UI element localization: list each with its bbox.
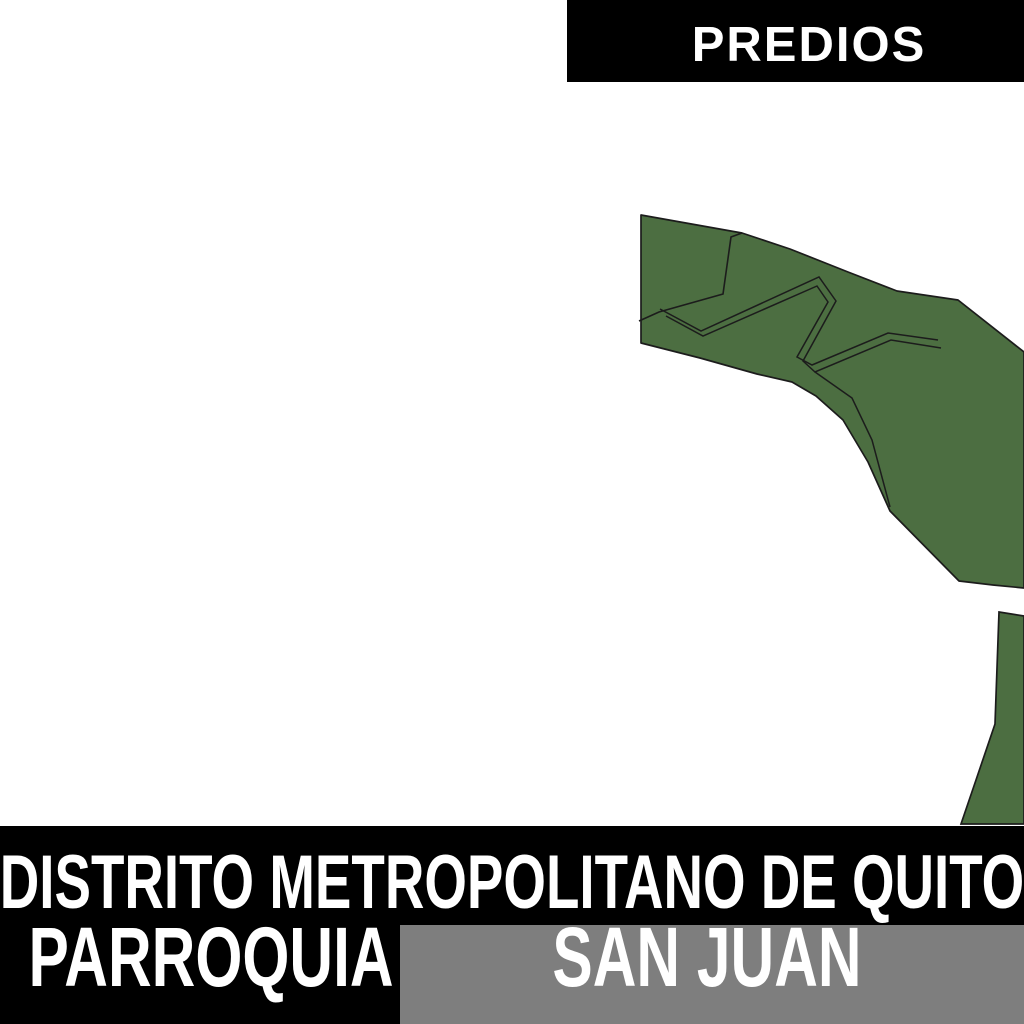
svg-text:SAN JUAN: SAN JUAN xyxy=(552,910,861,1004)
svg-text:PARROQUIA: PARROQUIA xyxy=(28,910,393,1004)
svg-text:PREDIOS: PREDIOS xyxy=(692,18,927,72)
